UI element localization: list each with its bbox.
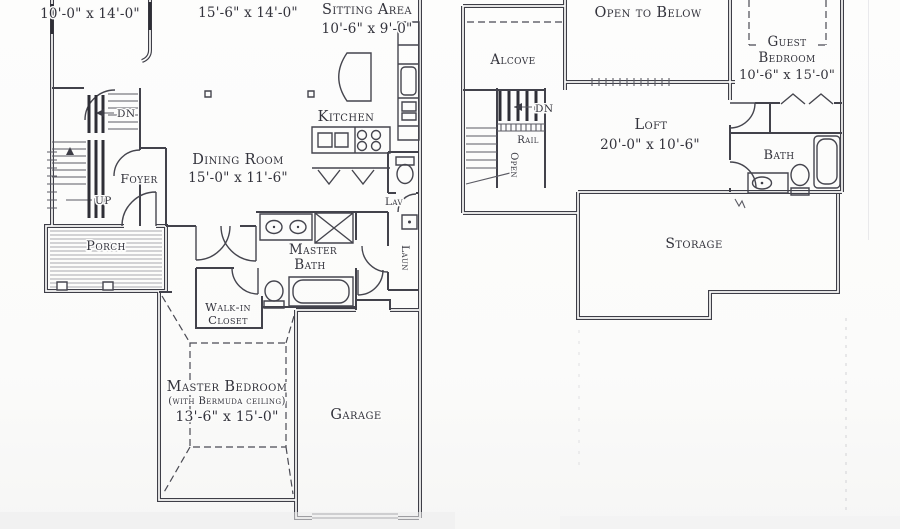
storage-label: Storage [665,236,722,252]
bifold-door-icon [781,94,833,104]
kitchen-label: Kitchen [318,109,375,125]
open-to-below-label: Open to Below [594,5,701,21]
tub-basin [817,139,837,184]
loft-dims: 20'-0" x 10'-6" [600,137,700,153]
floor-plan-drawing: 10'-0" x 14'-0" 15'-6" x 14'-0" Sitting … [0,0,900,529]
shower-icon [315,213,353,243]
foyer-label: Foyer [120,171,157,186]
rail-label: Rail [517,135,539,146]
garage-label: Garage [330,407,381,423]
lav-toilet-bowl [397,165,413,184]
master-bath-label-1: Master [289,242,337,258]
stairs-up-label: UP [95,195,112,207]
guest-closet [781,94,833,104]
dining-room-label: Dining Room [192,152,284,168]
second-floor-plan: Open to Below Alcove Guest Bedroom 10'-6… [463,0,842,318]
bay-seat-icon [339,53,371,101]
guest-bedroom-label-1: Guest [767,34,806,50]
master-bath-label-2: Bath [294,257,325,273]
sitting-area-fixture [205,53,371,101]
guest-bedroom-label-2: Bedroom [758,50,815,66]
toilet-bowl [791,165,809,186]
walk-in-closet-label-2: Closet [208,313,248,327]
tub-basin [293,280,349,303]
open-label: Open [508,152,519,178]
garage-door [312,514,398,518]
sitting-area-label: Sitting Area [322,2,412,18]
burner-icon [358,142,367,151]
up-arrow-head [66,147,74,155]
guest-bedroom-dims: 10'-6" x 15'-0" [739,68,835,83]
stairs-down-label: DN [117,108,135,120]
sitting-area-dims: 10'-6" x 9'-0" [322,21,413,37]
attic-mark [735,199,745,208]
second-floor-doors [730,103,756,188]
great-room-dims: 15'-6" x 14'-0" [198,5,298,21]
drain-dot [408,221,411,224]
drain-dot [273,226,275,228]
walk-in-closet-label-1: Walk-in [205,300,251,314]
pedestal-sink-icon [265,281,283,301]
alcove-label: Alcove [489,52,535,68]
rail-band [497,124,545,131]
refrigerator-icon [401,67,416,95]
porch-label: Porch [86,239,126,254]
floor-plan-sheet: 10'-0" x 14'-0" 15'-6" x 14'-0" Sitting … [0,0,900,529]
kitchen-counter [312,22,419,184]
dining-room-dims: 15'-0" x 11'-6" [188,170,288,186]
burner-icon [372,142,381,151]
kitchen-fixtures [312,22,419,184]
drain-dot [297,226,299,228]
loft-label: Loft [634,117,667,133]
master-bedroom-dims: 13'-6" x 15'-0" [175,409,278,425]
first-floor-plan: 10'-0" x 14'-0" 15'-6" x 14'-0" Sitting … [40,0,420,518]
burner-icon [372,131,381,140]
burner-icon [358,131,367,140]
stairs-down-label: DN [535,103,553,115]
master-bedroom-note: (with Bermuda ceiling) [168,396,286,407]
laundry-label: Laun [399,245,411,271]
door-arcs [730,103,756,188]
room-dims-upper-left: 10'-0" x 14'-0" [40,6,140,22]
bath-label: Bath [763,148,794,163]
column-posts [205,91,314,97]
drain-dot [761,182,764,185]
double-vanity [260,214,312,240]
lav-label: Lav [385,196,403,208]
master-bedroom-label: Master Bedroom [167,379,288,395]
